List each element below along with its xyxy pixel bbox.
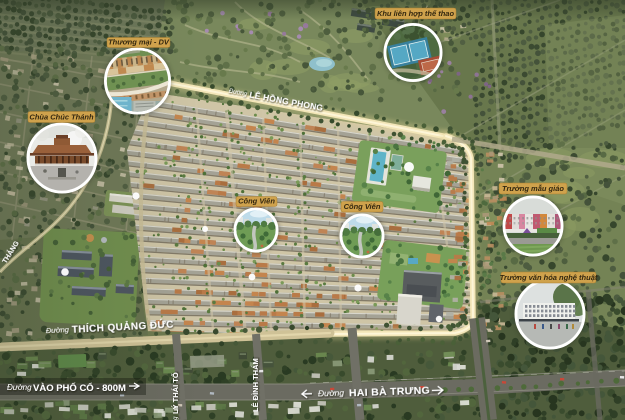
svg-text:LÝ THÁI TỔ: LÝ THÁI TỔ xyxy=(171,372,180,414)
svg-text:Công Viên: Công Viên xyxy=(238,197,275,206)
svg-text:VÀO PHỐ CỔ - 800M: VÀO PHỐ CỔ - 800M xyxy=(33,382,126,394)
svg-text:Thương mại - DV: Thương mại - DV xyxy=(108,38,170,47)
svg-text:Đường: Đường xyxy=(7,383,32,392)
svg-text:Đường: Đường xyxy=(46,325,70,335)
svg-text:Trường mẫu giáo: Trường mẫu giáo xyxy=(502,184,564,193)
svg-text:Khu liên hợp thể thao: Khu liên hợp thể thao xyxy=(377,9,455,18)
svg-text:Đường: Đường xyxy=(318,388,345,399)
svg-text:LÊ ĐÌNH THÁM: LÊ ĐÌNH THÁM xyxy=(251,358,260,412)
svg-text:Công Viên: Công Viên xyxy=(344,202,381,211)
svg-text:Chùa Chúc Thánh: Chùa Chúc Thánh xyxy=(29,113,94,122)
svg-text:Trường văn hóa nghệ thuật: Trường văn hóa nghệ thuật xyxy=(500,273,598,282)
